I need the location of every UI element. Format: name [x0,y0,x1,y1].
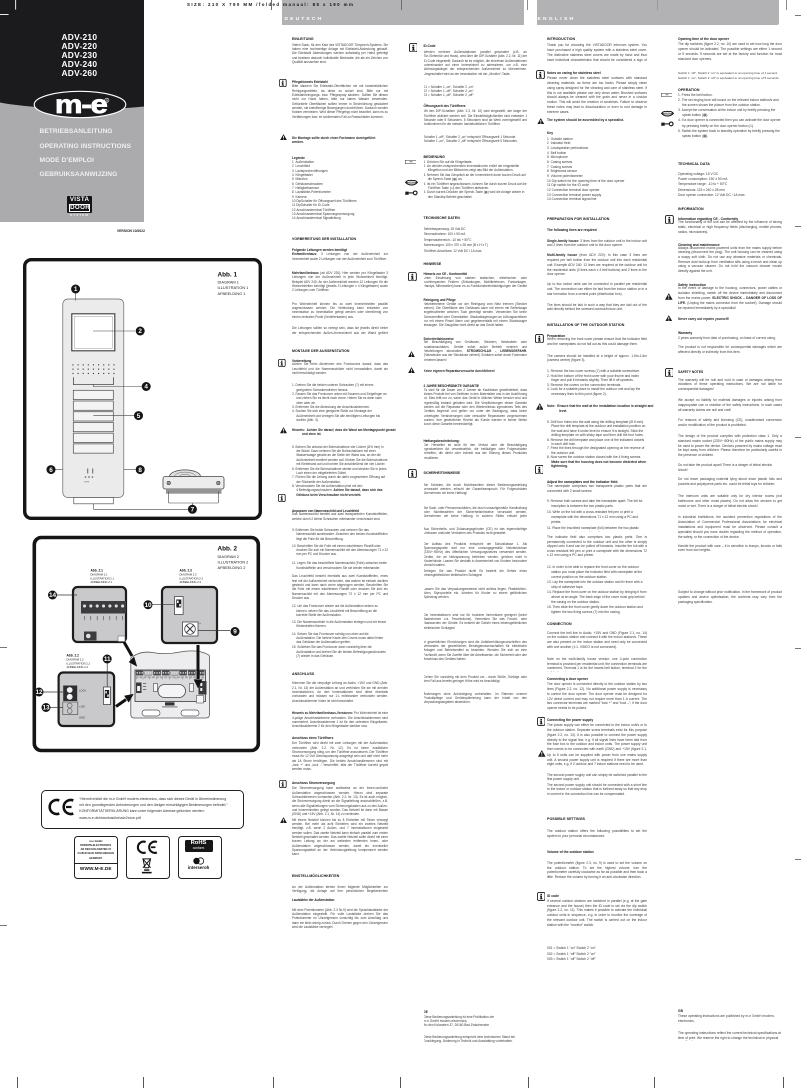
svg-text:13: 13 [42,705,50,712]
svg-text:ILLUSTRATION 2.1: ILLUSTRATION 2.1 [91,576,115,580]
svg-text:ILLUSTRATION 2.3: ILLUSTRATION 2.3 [180,576,204,580]
svg-text:1: 1 [74,286,78,293]
svg-text:DIAGRAM 2: DIAGRAM 2 [218,554,239,559]
svg-text:AFBEELDING 2: AFBEELDING 2 [218,565,246,570]
svg-text:Abb. 2.3: Abb. 2.3 [180,569,193,573]
svg-text:AFBEELDING 2.2: AFBEELDING 2.2 [67,665,89,669]
svg-text:11: 11 [104,656,111,663]
svg-text:14: 14 [49,592,57,599]
svg-text:Abb. 2.2: Abb. 2.2 [67,654,80,658]
svg-text:Abb. 2.1: Abb. 2.1 [91,569,104,573]
svg-text:GND: GND [79,716,85,720]
svg-text:+15V: +15V [79,705,85,709]
svg-text:ILLUSTRATION 2: ILLUSTRATION 2 [218,560,249,565]
svg-text:Abb. 1: Abb. 1 [218,271,238,278]
svg-text:m-e: m-e [84,480,89,484]
svg-text:ILLUSTRATION 1: ILLUSTRATION 1 [218,285,249,290]
svg-text:Abb. 2: Abb. 2 [218,546,238,553]
svg-text:7: 7 [191,507,195,514]
svg-text:ILLUSTRATION 2.2: ILLUSTRATION 2.2 [67,661,91,665]
svg-text:DIAGRAM 2.3: DIAGRAM 2.3 [180,573,198,577]
svg-text:5: 5 [137,413,141,420]
svg-text:10: 10 [144,602,152,609]
svg-text:AFBEELDING 2.1: AFBEELDING 2.1 [91,580,113,584]
svg-text:DIAGRAM 2.2: DIAGRAM 2.2 [67,658,85,662]
svg-text:m-e: m-e [55,91,107,120]
svg-text:DIAGRAM 2.1: DIAGRAM 2.1 [91,573,109,577]
svg-text:4: 4 [144,384,148,391]
svg-text:AFBEELDING 2.3: AFBEELDING 2.3 [180,580,202,584]
svg-text:LOCK: LOCK [79,689,86,693]
svg-text:AFBEELDING 1: AFBEELDING 1 [218,291,246,296]
svg-text:6: 6 [49,467,53,474]
svg-text:9: 9 [233,629,237,636]
svg-text:+: + [199,622,201,626]
svg-text:12: 12 [35,689,43,696]
svg-text:DIAGRAM 1: DIAGRAM 1 [218,279,239,284]
svg-text:8: 8 [138,467,142,474]
svg-text:2: 2 [138,328,142,335]
